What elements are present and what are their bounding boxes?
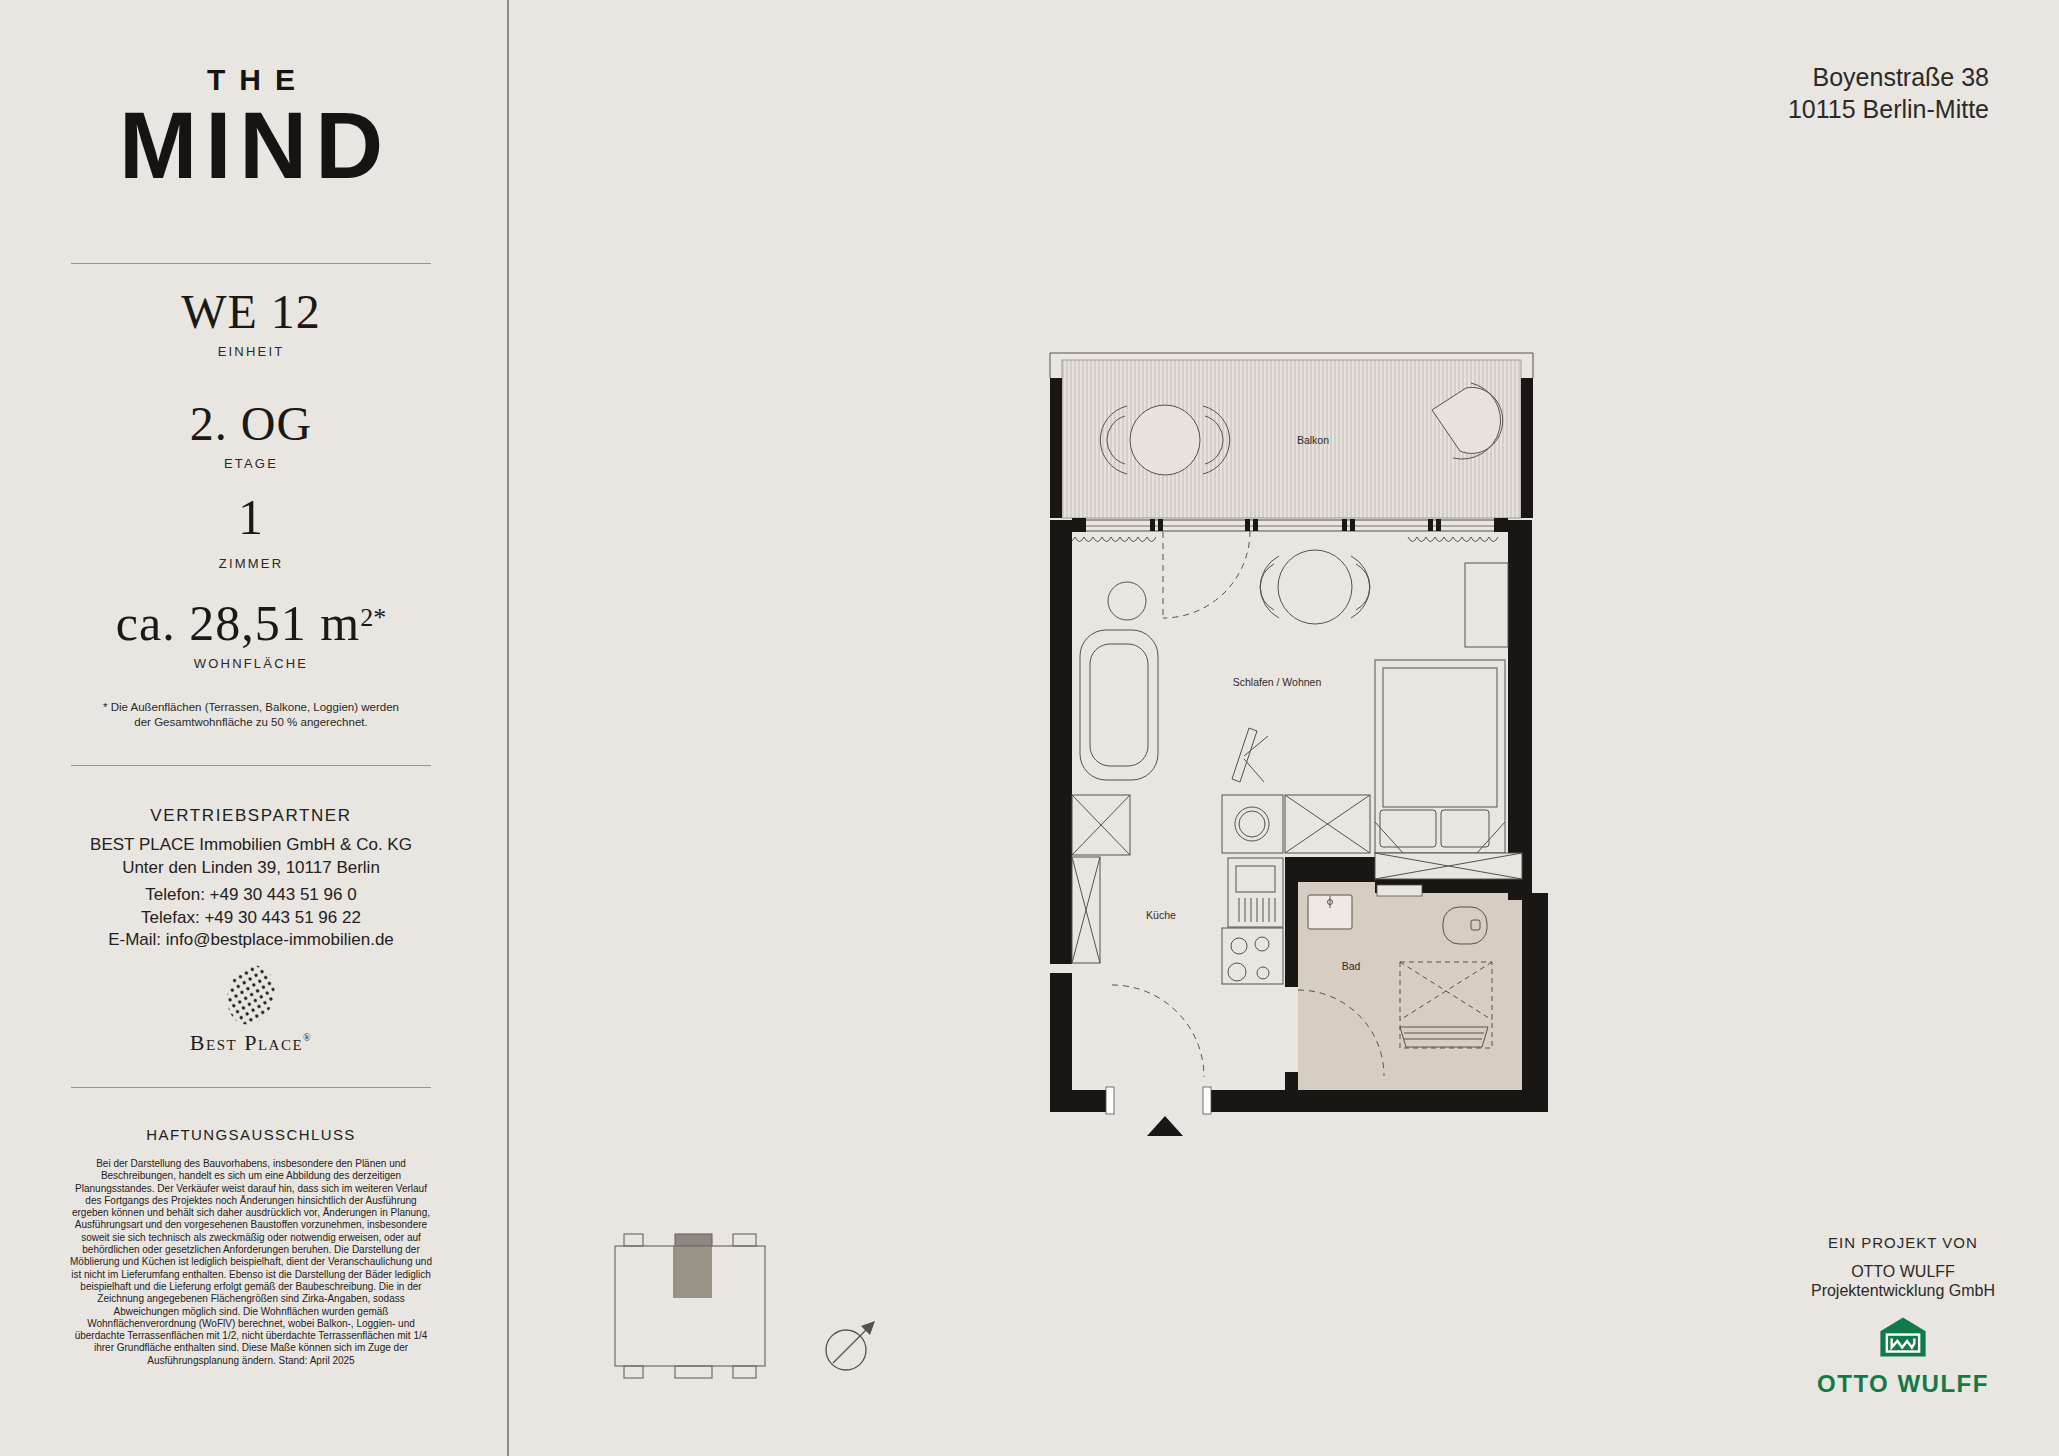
bath-niche-shelf (1377, 885, 1422, 896)
window-wall (1066, 518, 1508, 542)
balcony-wall-left (1050, 378, 1062, 518)
partner-contact: Telefon: +49 30 443 51 96 0 Telefax: +49… (71, 884, 431, 952)
best-place-logo-icon (219, 964, 283, 1026)
sidebar-rule-1 (71, 263, 431, 264)
best-place-wordmark: Best Place® (71, 1030, 431, 1056)
entrance-marker-triangle (1147, 1116, 1183, 1136)
entry-door-jamb-right (1203, 1087, 1211, 1114)
partner-email: E-Mail: info@bestplace-immobilien.de (71, 929, 431, 952)
disclaimer-text: Bei der Darstellung des Bauvorhabens, in… (69, 1158, 433, 1367)
best-place-registered-mark: ® (303, 1032, 312, 1043)
building-outline (615, 1234, 765, 1378)
project-company-line1: OTTO WULFF (1733, 1262, 2059, 1281)
dining-set (1260, 550, 1370, 624)
sidebar-rule-2 (71, 765, 431, 766)
vertical-divider (507, 0, 509, 1456)
floor-lamp (1232, 728, 1268, 782)
project-company-line2: Projektentwicklung GmbH (1733, 1281, 2059, 1300)
project-credit: EIN PROJEKT VON OTTO WULFF Projektentwic… (1733, 1234, 2059, 1398)
area-value-main: ca. 28,51 m (116, 595, 360, 651)
area-value: ca. 28,51 m2* (71, 598, 431, 648)
address-line-2: 10115 Berlin-Mitte (1788, 94, 1989, 126)
rooms-label: ZIMMER (71, 556, 431, 571)
brand-line-mind: MIND (71, 102, 431, 190)
bed (1375, 660, 1505, 853)
living-room-label: Schlafen / Wohnen (1233, 676, 1322, 688)
partner-name-address: BEST PLACE Immobilien GmbH & Co. KG Unte… (71, 833, 431, 879)
partner-phone: Telefon: +49 30 443 51 96 0 (71, 884, 431, 907)
desk (1465, 563, 1508, 647)
curtain-wave-left (1066, 537, 1156, 542)
toilet (1443, 907, 1487, 944)
partner-fax: Telefax: +49 30 443 51 96 22 (71, 907, 431, 930)
site-plan (590, 1220, 890, 1456)
wardrobe (1072, 795, 1130, 963)
entry-door-jamb-left (1106, 1087, 1114, 1114)
disclaimer-heading: HAFTUNGSAUSSCHLUSS (71, 1126, 431, 1143)
unit-label: EINHEIT (71, 344, 431, 359)
unit-value: WE 12 (71, 288, 431, 336)
entry-door-arc (1112, 985, 1204, 1077)
area-value-sup: 2* (360, 603, 386, 632)
bath-label: Bad (1342, 960, 1361, 972)
balcony-wall-right (1521, 378, 1533, 518)
kitchen-label: Küche (1146, 909, 1176, 921)
project-heading: EIN PROJEKT VON (1733, 1234, 2059, 1251)
sidebar-rule-3 (71, 1087, 431, 1088)
partner-heading: VERTRIEBSPARTNER (71, 806, 431, 826)
expose-page: THE MIND WE 12 EINHEIT 2. OG ETAGE 1 ZIM… (0, 0, 2059, 1456)
unit-location-marker (673, 1246, 712, 1298)
best-place-wordmark-text: Best Place (190, 1030, 303, 1055)
rooms-value: 1 (71, 492, 431, 542)
property-address: Boyenstraße 38 10115 Berlin-Mitte (1788, 62, 1989, 125)
partner-name: BEST PLACE Immobilien GmbH & Co. KG (71, 833, 431, 856)
brand-logo: THE MIND (71, 62, 431, 190)
compass-icon (826, 1321, 875, 1370)
sofa (1080, 630, 1158, 780)
sideboard (1375, 853, 1522, 879)
unit-location-marker-top (675, 1234, 712, 1246)
sidebar: THE MIND WE 12 EINHEIT 2. OG ETAGE 1 ZIM… (0, 0, 508, 1456)
balcony-door-arc (1163, 531, 1250, 618)
bath-sink (1308, 895, 1352, 929)
floor-label: ETAGE (71, 456, 431, 471)
balcony (1050, 353, 1533, 518)
partner-address: Unter den Linden 39, 10117 Berlin (71, 856, 431, 879)
otto-wulff-logo-icon (1878, 1316, 1928, 1358)
area-footnote: * Die Außenflächen (Terrassen, Balkone, … (96, 700, 406, 730)
floor-value: 2. OG (71, 400, 431, 448)
side-table (1108, 582, 1146, 620)
otto-wulff-wordmark: OTTO WULFF (1733, 1370, 2059, 1398)
balcony-label: Balkon (1297, 434, 1329, 446)
area-label: WOHNFLÄCHE (71, 656, 431, 671)
floor-plan: Balkon (1030, 330, 1560, 1160)
curtain-wave-right (1408, 537, 1498, 542)
address-line-1: Boyenstraße 38 (1788, 62, 1989, 94)
